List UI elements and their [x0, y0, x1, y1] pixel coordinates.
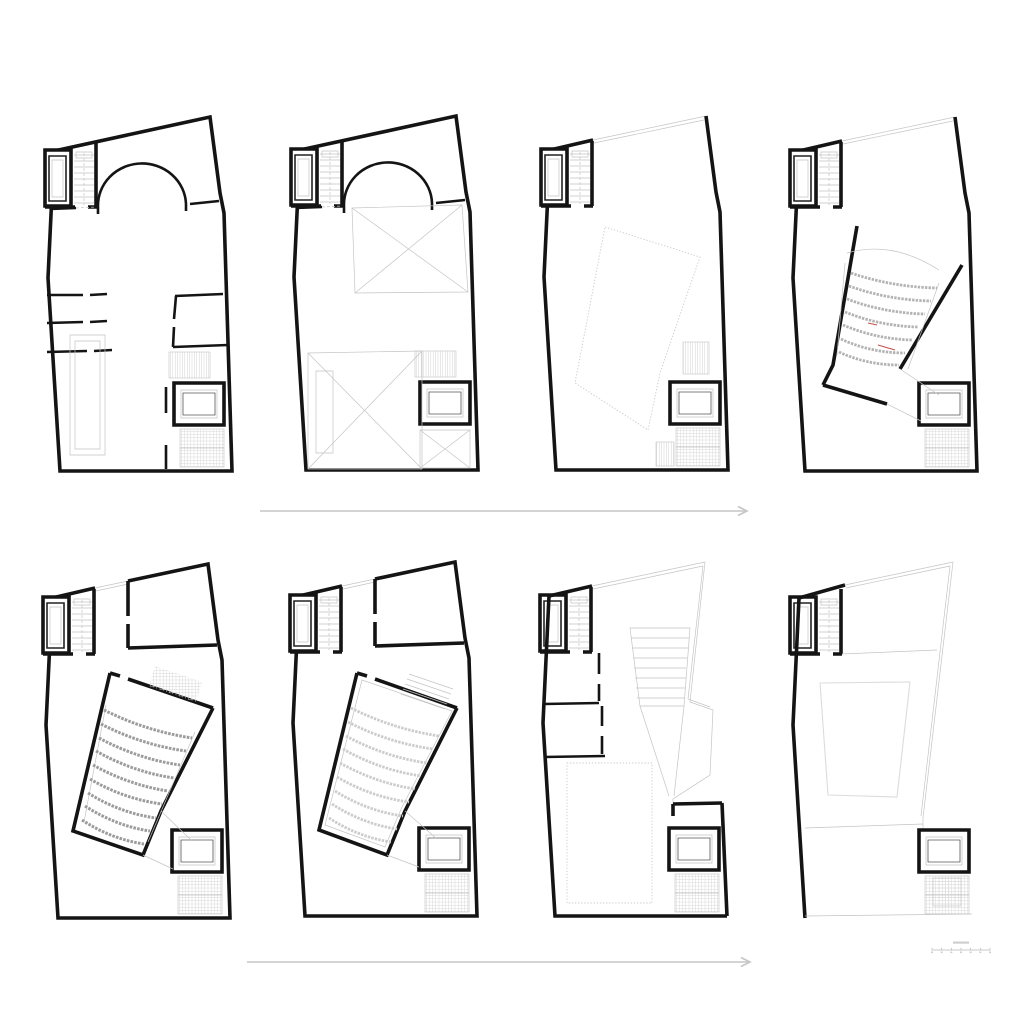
lift-room: [670, 382, 720, 424]
exterior-wall: [722, 803, 727, 916]
phase-arrow-2: [247, 958, 750, 967]
auditorium-seating: [839, 273, 937, 365]
connector-line: [640, 706, 684, 796]
stair-under-lift: [925, 429, 969, 467]
stair-under-lift: [675, 874, 719, 912]
ramp-inner: [316, 371, 333, 453]
room-wall: [47, 350, 112, 352]
room-wall: [544, 703, 599, 704]
floor-line: [842, 650, 937, 654]
elevator-room: [420, 382, 470, 424]
stair-hatch: [933, 878, 961, 906]
lift-room: [172, 830, 222, 872]
architectural-floor-plan-diagram: [0, 0, 1024, 1024]
stair-under-lift: [425, 874, 469, 912]
scale-bar-tick-number: [970, 952, 972, 954]
stair-under-lift: [178, 876, 222, 914]
lift-room: [420, 382, 470, 424]
terrace-step-lines: [631, 638, 689, 698]
annotations-group: [247, 507, 991, 967]
lift-room: [919, 830, 969, 872]
stair-hatch: [415, 351, 456, 377]
elevator-room: [670, 382, 720, 424]
roof-edge: [593, 116, 706, 143]
wall: [50, 208, 76, 209]
exterior-wall: [549, 586, 592, 596]
room-wall: [128, 645, 217, 648]
scale-bar-tick-number: [989, 952, 991, 954]
scale-bar-label: [953, 942, 969, 944]
scale-bar-tick-number: [950, 952, 952, 954]
skylight-outline: [820, 682, 910, 797]
floor-plan-2: [291, 116, 478, 470]
lift-room: [419, 828, 469, 870]
balcony-edge: [847, 249, 939, 270]
floor-plan-5: [43, 564, 230, 918]
floor-line: [805, 914, 972, 916]
scale-bar-tick-number: [979, 952, 981, 954]
red-mark: [878, 345, 895, 350]
ramp-inner: [75, 341, 100, 449]
roof-edge: [592, 562, 705, 589]
elevator-room: [419, 828, 469, 870]
void-cross: [308, 351, 422, 469]
scale-bar-tick-number: [960, 952, 962, 954]
elevator-room: [174, 383, 224, 425]
phase-arrow-1: [260, 507, 747, 516]
floor-plan-2-details: [308, 205, 470, 469]
scale-bar: [931, 942, 991, 954]
stair-hatch: [169, 352, 210, 378]
tl-block: [790, 142, 842, 207]
room-wall: [47, 321, 107, 323]
wall: [296, 207, 322, 208]
roof-edge: [842, 117, 955, 144]
void-cross: [352, 205, 468, 293]
stair-under-lift: [180, 429, 224, 467]
elevator-room: [172, 830, 222, 872]
tl-block: [291, 141, 343, 206]
room-wall: [173, 345, 228, 347]
arch: [50, 163, 219, 214]
tl-block: [45, 142, 97, 207]
stair-hatch: [683, 342, 709, 374]
auditorium-wall: [823, 226, 857, 385]
roof-edge: [95, 581, 128, 591]
floor-plan-6: [290, 562, 477, 916]
stair-above-lift: [169, 352, 210, 378]
floor-plan-4: [790, 117, 977, 471]
room-wall: [47, 294, 107, 295]
roof-edge: [845, 562, 953, 588]
elevator-room: [669, 828, 719, 870]
wall: [436, 200, 465, 203]
room-below-dashed: [567, 763, 652, 903]
lift-room: [919, 383, 969, 425]
tl-block: [43, 589, 95, 654]
floor-plans-svg: [0, 0, 1024, 1024]
roof-edge: [921, 562, 953, 818]
tr-room: [128, 581, 217, 648]
floor-plan-3: [541, 116, 728, 470]
tl-block: [541, 141, 593, 206]
floor-plans-group: [43, 116, 977, 918]
wall: [190, 201, 219, 204]
stair-under-lift: [676, 428, 720, 466]
stair-above-lift: [415, 351, 456, 377]
room-wall: [375, 643, 464, 646]
auditorium-wall: [823, 385, 887, 404]
arch-wall: [98, 163, 186, 207]
tl-block: [290, 587, 342, 652]
lift-room: [669, 828, 719, 870]
elevator-room: [919, 383, 969, 425]
elevator-room: [919, 830, 969, 872]
tr-room: [375, 579, 464, 646]
stair-hatch: [656, 442, 674, 466]
arch-base: [98, 204, 186, 214]
exterior-wall: [799, 585, 845, 598]
roof-edge: [342, 579, 375, 589]
floor-plan-8: [790, 562, 972, 918]
lift-room: [174, 383, 224, 425]
floor-line: [805, 824, 923, 828]
roof-edge-inner: [688, 566, 710, 707]
scale-bar-tick-number: [931, 952, 933, 954]
room-wall: [175, 294, 223, 296]
floor-plan-7: [540, 562, 727, 916]
terrace-steps: [630, 628, 690, 706]
wall: [673, 803, 722, 816]
floor-plan-1: [45, 117, 232, 471]
void-cross: [420, 430, 470, 468]
room-wall: [173, 296, 176, 347]
scale-bar-tick-number: [941, 952, 943, 954]
red-mark: [868, 323, 877, 325]
room-wall: [544, 756, 605, 757]
auditorium-wall: [900, 265, 962, 369]
arch-wall: [344, 162, 432, 206]
